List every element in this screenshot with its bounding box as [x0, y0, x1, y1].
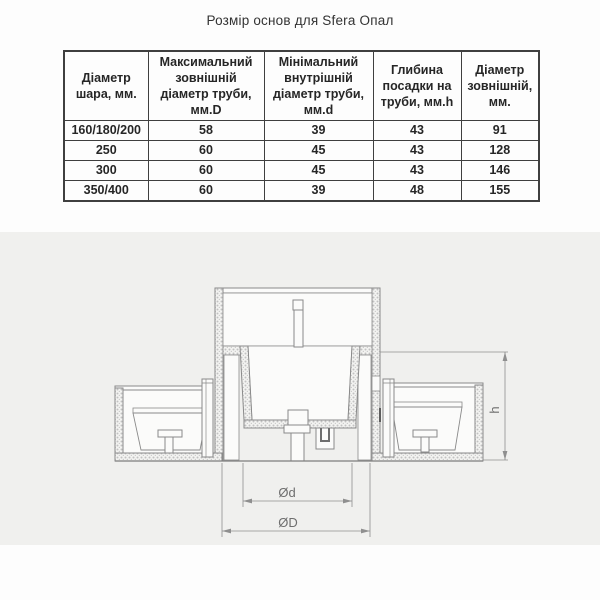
- table-cell: 39: [264, 121, 373, 141]
- table-cell: 60: [148, 181, 264, 202]
- left-cup-rim: [115, 386, 210, 390]
- right-t-bar: [413, 430, 437, 437]
- left-cup-outer-wall: [115, 388, 123, 461]
- table-cell: 350/400: [64, 181, 148, 202]
- column-header-min-inner-pipe-diameter: Мінімальний внутрішній діаметр труби, мм…: [264, 51, 373, 121]
- table-cell: 48: [373, 181, 461, 202]
- inner-cup-cavity: [248, 346, 352, 420]
- central-top-rim: [215, 288, 380, 293]
- pipe-channel-left: [224, 355, 239, 460]
- column-header-outer-diameter: Діаметр зовнішній, мм.: [461, 51, 539, 121]
- left-plate: [202, 379, 213, 457]
- dim-label-inner-diameter: Ød: [278, 485, 295, 500]
- table-cell: 160/180/200: [64, 121, 148, 141]
- arrow-h-bottom: [503, 451, 508, 460]
- right-t-stem: [421, 437, 429, 452]
- technical-drawing-band: Ød ØD h: [0, 232, 600, 545]
- pipe-channel-right: [358, 355, 371, 460]
- column-header-ball-diameter: Діаметр шара, мм.: [64, 51, 148, 121]
- right-cup-outer-wall: [475, 385, 483, 461]
- right-plate: [383, 379, 394, 457]
- table-cell: 146: [461, 161, 539, 181]
- cup-bottom-stem: [291, 433, 304, 461]
- table-cell: 39: [264, 181, 373, 202]
- table-cell: 43: [373, 121, 461, 141]
- left-vessel-rim: [133, 408, 207, 413]
- table-cell: 45: [264, 141, 373, 161]
- center-pin-body: [294, 310, 303, 347]
- table-cell: 43: [373, 141, 461, 161]
- arrow-h-top: [503, 352, 508, 361]
- table-cell: 91: [461, 121, 539, 141]
- column-header-seating-depth: Глибина посадки на труби, мм.h: [373, 51, 461, 121]
- dim-label-height: h: [487, 406, 502, 413]
- table-cell: 60: [148, 141, 264, 161]
- arrow-d-right: [343, 499, 352, 504]
- right-cup: [372, 379, 483, 461]
- u-clip-body: [316, 428, 334, 449]
- cup-bottom-flange: [284, 425, 310, 433]
- table-cell: 58: [148, 121, 264, 141]
- header-row: Діаметр шара, мм. Максимальний зовнішній…: [64, 51, 539, 121]
- left-cup: [115, 379, 222, 461]
- table-row: 300 60 45 43 146: [64, 161, 539, 181]
- technical-drawing: Ød ØD h: [0, 232, 600, 545]
- table-cell: 128: [461, 141, 539, 161]
- table-cell: 45: [264, 161, 373, 181]
- dim-label-outer-diameter: ØD: [278, 515, 298, 530]
- arrow-D-right: [361, 529, 370, 534]
- table-row: 350/400 60 39 48 155: [64, 181, 539, 202]
- right-vessel-rim: [392, 402, 462, 407]
- arrow-D-left: [222, 529, 231, 534]
- left-t-stem: [165, 437, 173, 453]
- table-cell: 60: [148, 161, 264, 181]
- table-row: 250 60 45 43 128: [64, 141, 539, 161]
- central-base: [202, 288, 380, 461]
- arrow-d-left: [243, 499, 252, 504]
- cup-bottom-block: [288, 410, 308, 425]
- center-pin-cap: [293, 300, 303, 310]
- central-left-wall: [215, 288, 223, 461]
- central-right-wall: [372, 288, 380, 461]
- right-wall-notch: [372, 376, 380, 391]
- column-header-max-outer-pipe-diameter: Максимальний зовнішній діаметр труби, мм…: [148, 51, 264, 121]
- page-title: Розмір основ для Sfera Опал: [0, 13, 600, 28]
- left-t-bar: [158, 430, 182, 437]
- table-cell: 155: [461, 181, 539, 202]
- right-cup-rim: [390, 383, 483, 387]
- table-row: 160/180/200 58 39 43 91: [64, 121, 539, 141]
- table-cell: 300: [64, 161, 148, 181]
- table-cell: 43: [373, 161, 461, 181]
- table-cell: 250: [64, 141, 148, 161]
- spec-table: Діаметр шара, мм. Максимальний зовнішній…: [63, 50, 540, 202]
